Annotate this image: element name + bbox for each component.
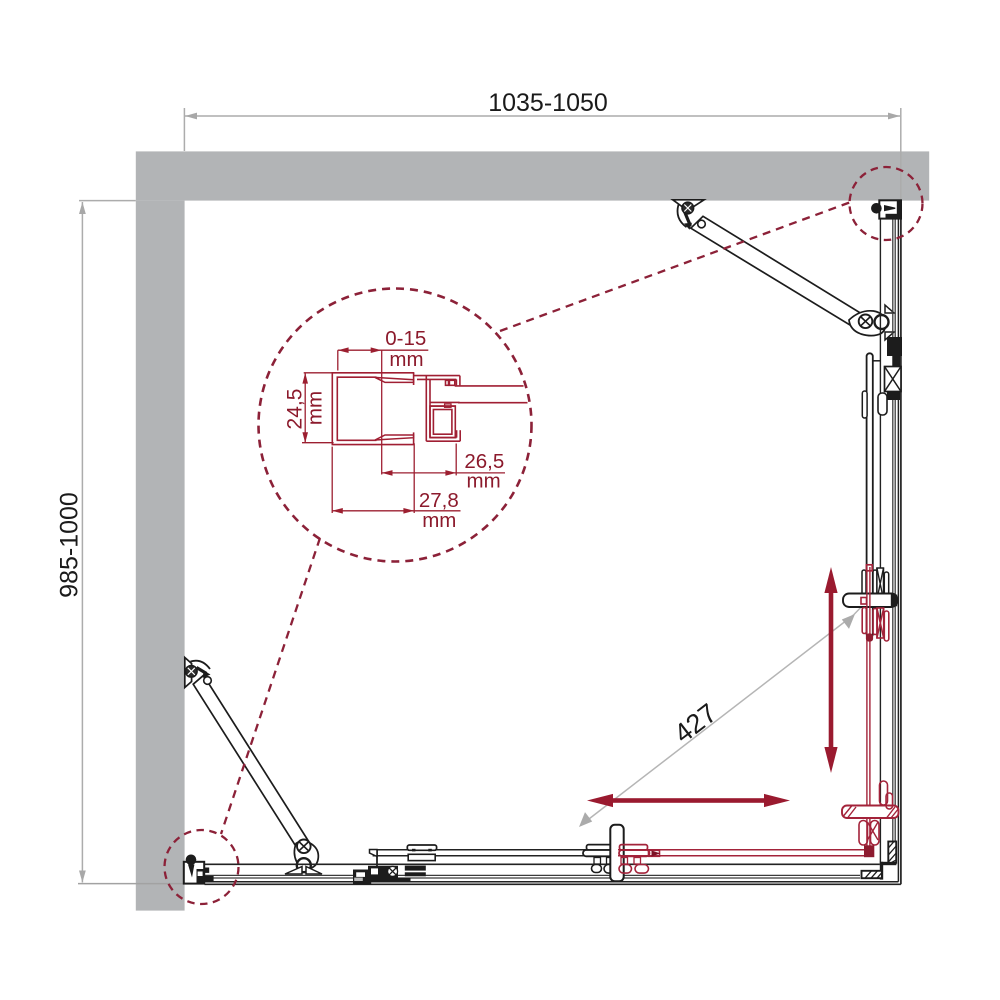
svg-text:1035-1050: 1035-1050: [488, 89, 608, 117]
svg-text:mm: mm: [389, 348, 423, 371]
svg-text:mm: mm: [422, 509, 456, 532]
svg-text:0-15: 0-15: [385, 327, 426, 350]
svg-text:mm: mm: [467, 470, 501, 493]
svg-text:985-1000: 985-1000: [56, 492, 84, 598]
svg-text:mm: mm: [304, 391, 327, 425]
svg-text:427: 427: [669, 698, 723, 749]
